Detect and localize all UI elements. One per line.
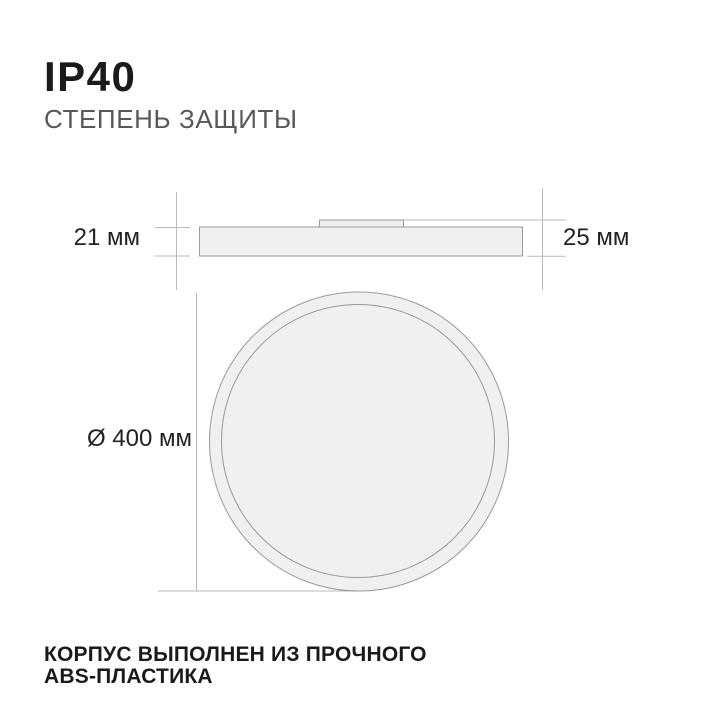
- side-view-mount-plate: [320, 220, 404, 228]
- body-height-dimension-label: 21 мм: [50, 226, 140, 250]
- total-height-dimension-label: 25 мм: [563, 226, 629, 250]
- front-view-outer-circle: [210, 292, 509, 591]
- material-description-line2: ABS-ПЛАСТИКА: [44, 666, 427, 688]
- diameter-dimension-label: Ø 400 мм: [50, 427, 192, 451]
- side-view-left-dimension: [155, 192, 190, 290]
- technical-drawing: [0, 0, 720, 720]
- spec-sheet-page: IP40 СТЕПЕНЬ ЗАЩИТЫ 21 мм 25 мм Ø 400 мм: [0, 0, 720, 720]
- side-view-body: [200, 227, 523, 256]
- material-description-line1: КОРПУС ВЫПОЛНЕН ИЗ ПРОЧНОГО: [44, 644, 427, 666]
- material-description: КОРПУС ВЫПОЛНЕН ИЗ ПРОЧНОГО ABS-ПЛАСТИКА: [44, 644, 427, 687]
